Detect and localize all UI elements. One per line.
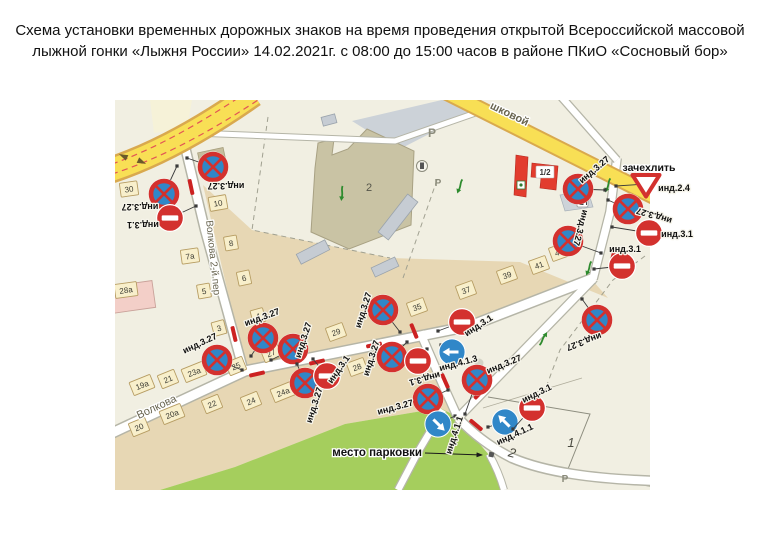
map-terrain: 301087а653428а23а2119а20а20222424а252729… (108, 90, 663, 490)
building-2-label: 2 (366, 182, 372, 194)
sign-index-label: инд.3.1 (127, 220, 159, 230)
building-half-label: 1/2 (536, 166, 554, 178)
building-number: 8 (223, 235, 238, 251)
building-number: 7а (180, 248, 199, 264)
parking-p-mark: Р (562, 474, 569, 485)
svg-text:1/2: 1/2 (539, 168, 551, 177)
scheme-page: { "title": { "line1": "Схема установки в… (0, 0, 760, 537)
sign-index-label: инд.3.27 (122, 202, 159, 212)
monument-icon (417, 161, 428, 172)
sign-index-label: инд.3.27 (208, 181, 245, 191)
building-number: 10 (208, 195, 228, 212)
sign-index-label: инд.3.1 (609, 244, 641, 254)
parking-p-mark: Р (435, 178, 442, 189)
cover-sign-note: зачехлить (622, 162, 676, 174)
building-number: 6 (236, 270, 251, 286)
building-number: 5 (196, 283, 211, 299)
road-signs-map: 301087а653428а23а2119а20а20222424а252729… (0, 0, 760, 537)
building-number: 28а (114, 282, 138, 299)
building-number: 30 (119, 181, 138, 197)
sign-index-label: инд.3.1 (661, 229, 693, 239)
parking-spot-marker (488, 452, 494, 458)
sign-index-label: инд.2.4 (658, 183, 690, 193)
parking-place-note: место парковки (332, 447, 422, 459)
info-icon (517, 181, 525, 189)
zone-1-label: 1 (567, 435, 574, 450)
parking-p-mark: Р (428, 126, 436, 140)
svg-text:7а: 7а (185, 251, 196, 261)
svg-text:28а: 28а (119, 285, 134, 296)
svg-text:30: 30 (124, 184, 135, 194)
